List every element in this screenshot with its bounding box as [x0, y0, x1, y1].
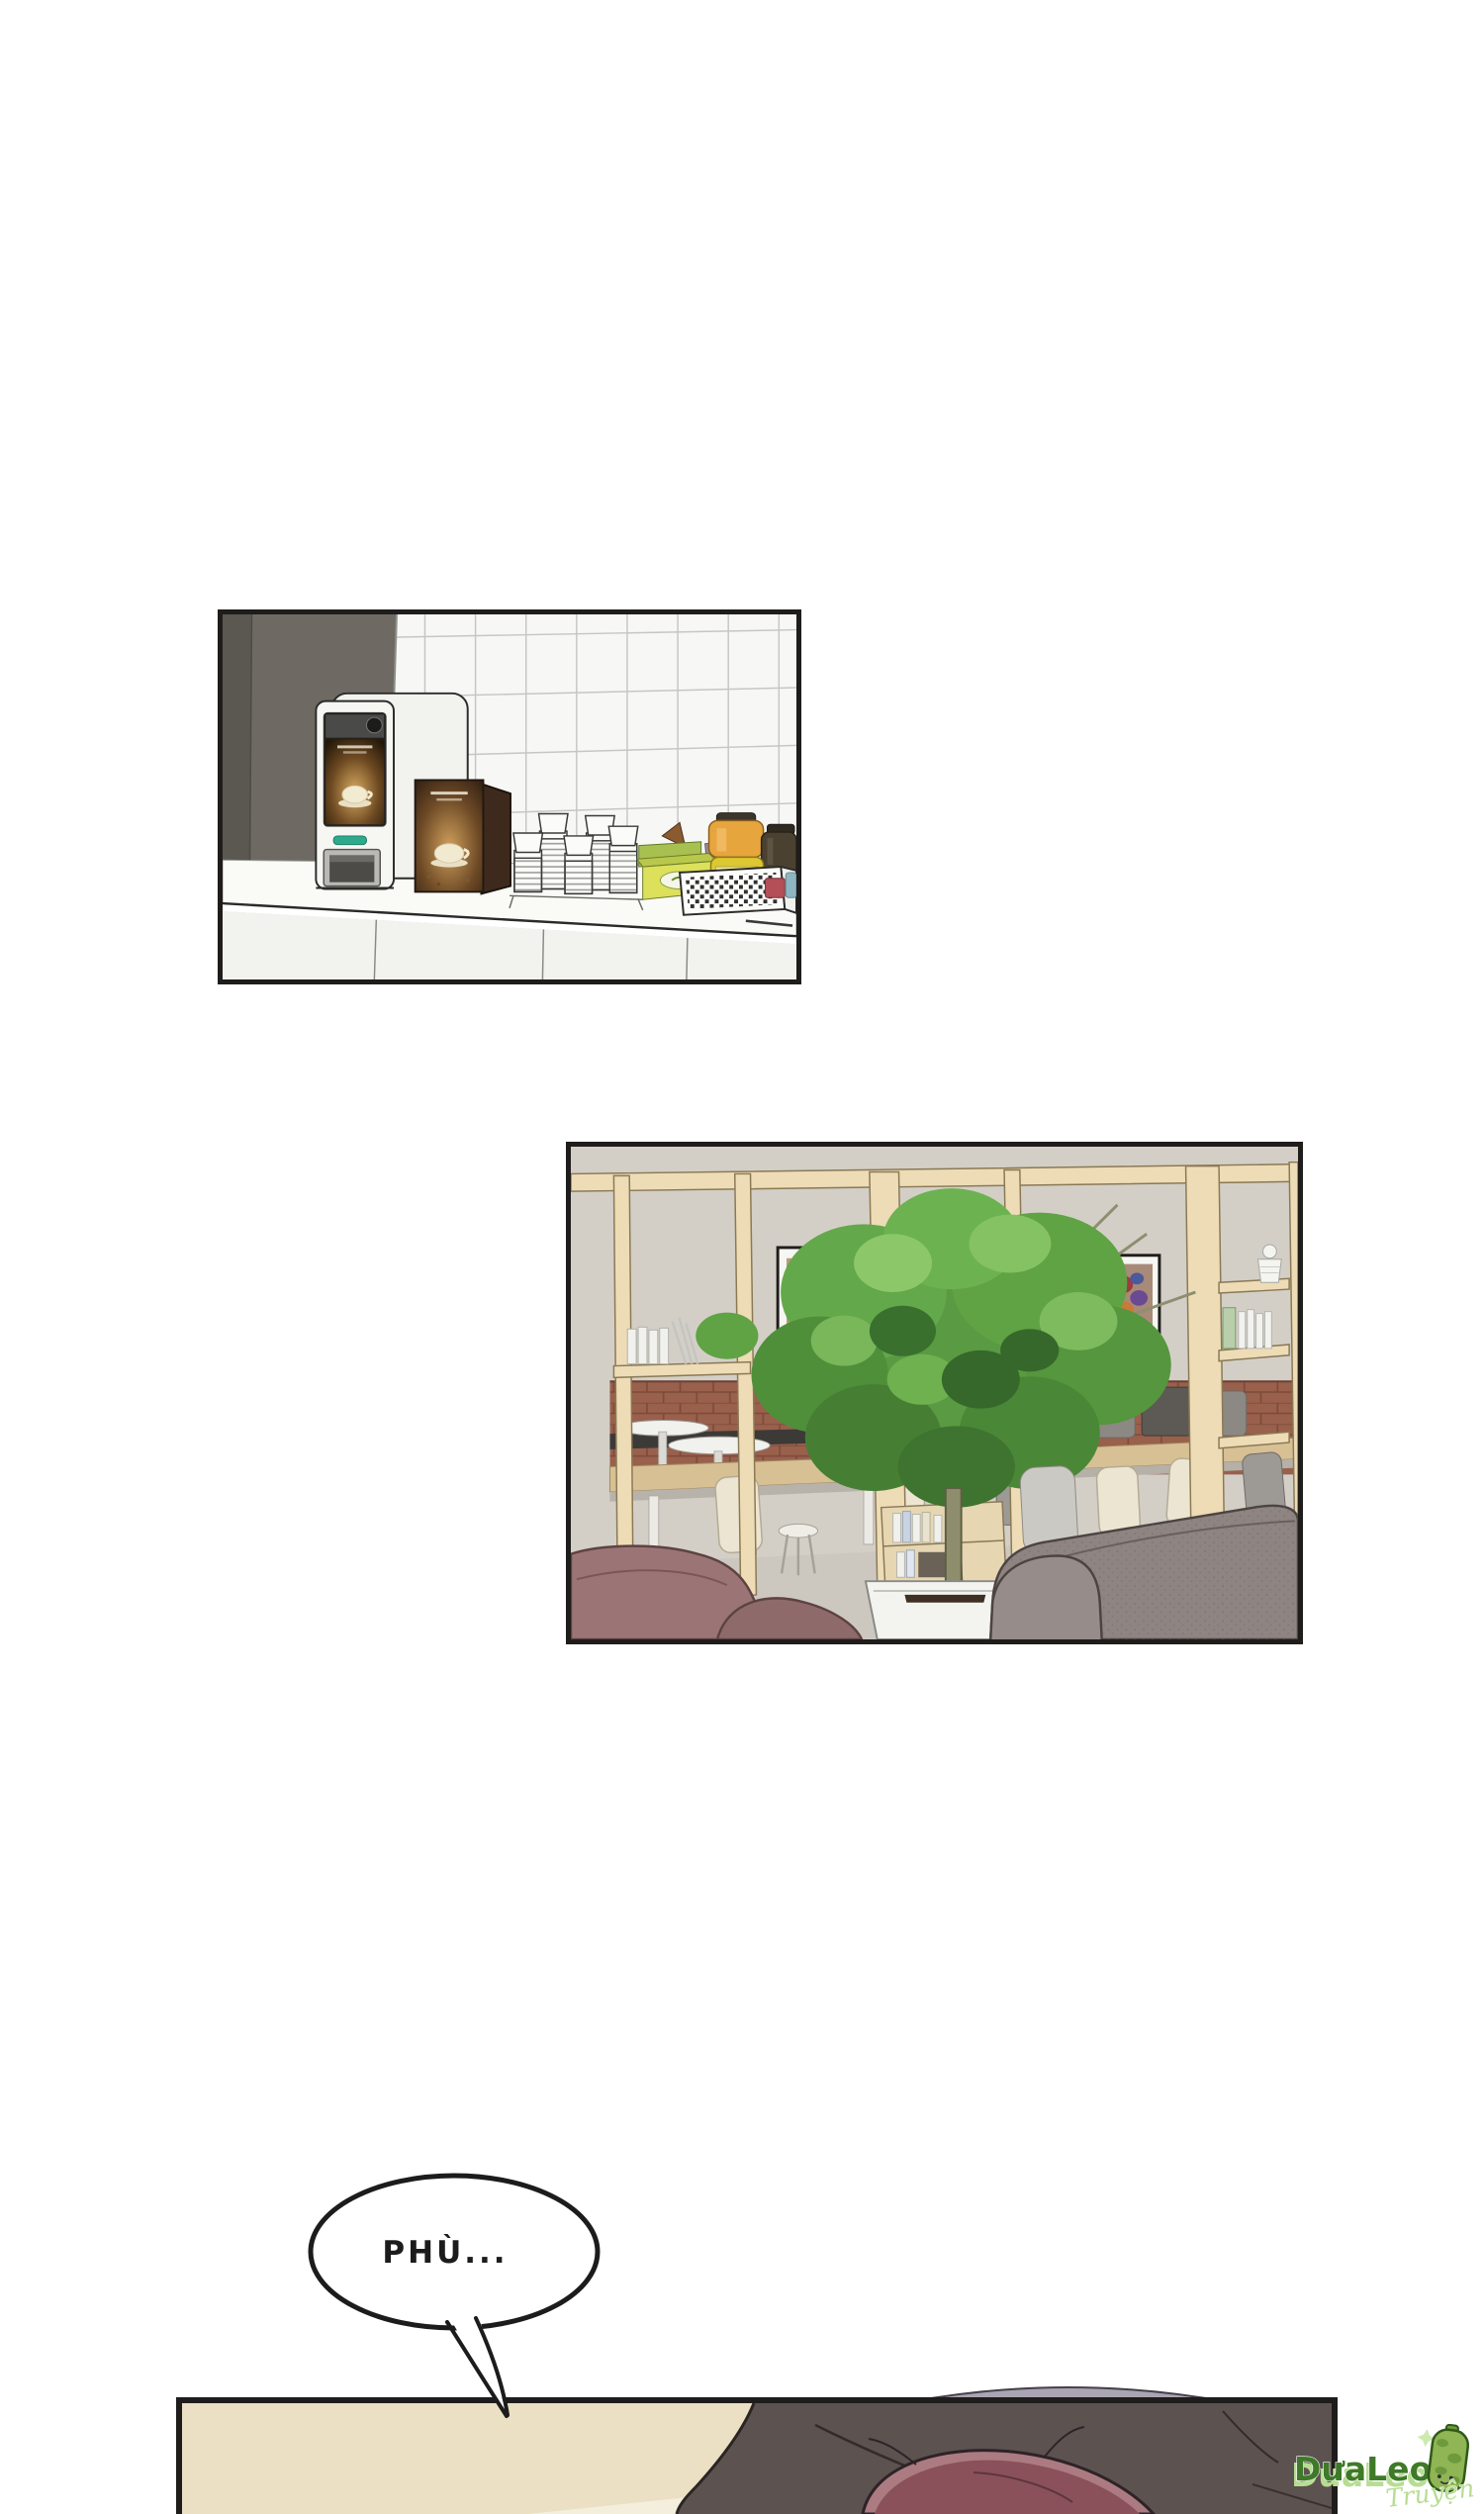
panel-coffee-counter [218, 609, 801, 984]
shelf-books-right [1223, 1308, 1271, 1349]
low-bookshelf [881, 1502, 1006, 1585]
coffee-box [416, 780, 510, 893]
speech-bubble: PHÙ... [297, 2162, 623, 2439]
webtoon-page: PHÙ... DưaLeo DưaLeo Truyện [0, 0, 1484, 2514]
watermark: DưaLeo DưaLeo Truyện [1284, 2424, 1484, 2514]
speech-bubble-text: PHÙ... [382, 2234, 508, 2271]
panel-cafe-interior [566, 1142, 1303, 1644]
